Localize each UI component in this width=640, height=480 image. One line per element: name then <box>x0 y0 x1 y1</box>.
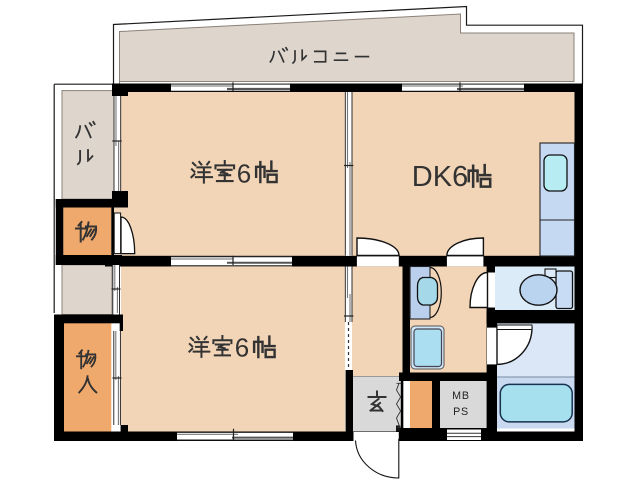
svg-text:PS: PS <box>453 406 469 418</box>
svg-text:MB: MB <box>452 390 470 402</box>
svg-text:6: 6 <box>237 159 251 189</box>
svg-text:DK6: DK6 <box>412 161 468 193</box>
svg-text:6: 6 <box>235 333 249 363</box>
